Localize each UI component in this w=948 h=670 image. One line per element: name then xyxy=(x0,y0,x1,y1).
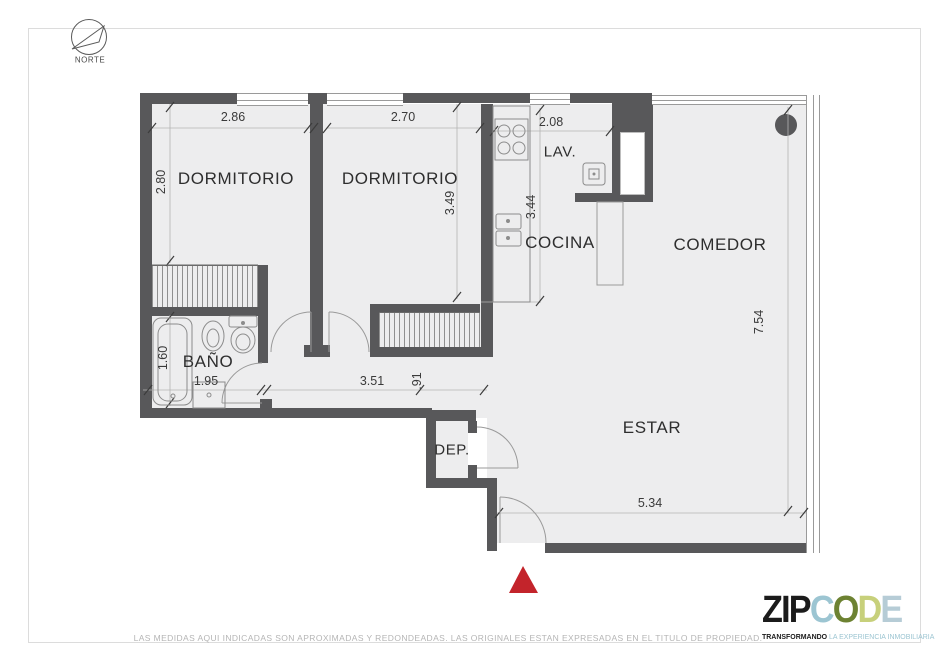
room-label-comedor: COMEDOR xyxy=(674,235,767,255)
floorplan-linework xyxy=(0,0,948,670)
entrance-arrow-icon xyxy=(509,566,538,593)
dim-cocina-alto: 3.44 xyxy=(524,195,538,219)
logo-letter-o: O xyxy=(833,589,858,631)
room-label-lavadero: LAV. xyxy=(544,144,576,161)
door-entrance xyxy=(500,497,546,543)
room-label-deposito: DEP. xyxy=(434,442,469,459)
door-deposito xyxy=(477,427,518,468)
zipcode-logo: ZIPCODE TRANSFORMANDO LA EXPERIENCIA INM… xyxy=(762,591,927,641)
floorplan-page: { "compass": { "label": "NORTE" }, "floo… xyxy=(0,0,948,670)
kitchen-island-counter xyxy=(597,202,623,285)
room-label-dormitorio-1: DORMITORIO xyxy=(178,169,294,189)
north-compass-icon xyxy=(72,20,107,55)
tagline-rest: LA EXPERIENCIA INMOBILIARIA xyxy=(827,632,934,641)
stove-icon xyxy=(495,119,528,160)
logo-letter-d: D xyxy=(858,589,881,631)
bidet-icon xyxy=(202,321,224,351)
room-label-cocina: COCINA xyxy=(525,233,595,253)
dim-comedor-alto: 7.54 xyxy=(752,310,766,334)
logo-letter-c: C xyxy=(810,589,833,631)
door-dormitorio-1 xyxy=(271,312,311,352)
dim-pasillo-resto: .91 xyxy=(410,372,424,389)
tagline-bold: TRANSFORMANDO xyxy=(762,632,827,641)
room-label-dormitorio-2: DORMITORIO xyxy=(342,169,458,189)
door-arcs xyxy=(222,312,546,543)
room-label-banio: BAÑO xyxy=(183,352,234,372)
dim-dormitorio-1-alto: 2.80 xyxy=(154,170,168,194)
dim-banio-alto: 1.60 xyxy=(156,346,170,370)
washing-machine-icon xyxy=(583,163,605,185)
dim-dormitorio-2-alto: 3.49 xyxy=(443,191,457,215)
zipcode-logo-tagline: TRANSFORMANDO LA EXPERIENCIA INMOBILIARI… xyxy=(762,632,922,641)
toilet-icon xyxy=(229,316,257,353)
dimension-ticks xyxy=(144,102,808,518)
compass-label: NORTE xyxy=(75,56,105,65)
logo-letter-e: E xyxy=(880,589,901,631)
room-label-estar: ESTAR xyxy=(623,418,681,438)
zipcode-logo-wordmark: ZIPCODE xyxy=(762,591,911,629)
dim-lavadero-ancho: 2.08 xyxy=(539,115,563,129)
dimension-lines xyxy=(143,104,806,513)
disclaimer-text: LAS MEDIDAS AQUI INDICADAS SON APROXIMAD… xyxy=(118,633,778,643)
logo-zip: ZIP xyxy=(762,589,810,631)
dim-pasillo-ancho: 3.51 xyxy=(360,374,384,388)
kitchen-sink-icon xyxy=(496,214,521,246)
dim-dormitorio-1-ancho: 2.86 xyxy=(221,110,245,124)
door-dormitorio-2 xyxy=(329,312,369,352)
dim-estar-ancho: 5.34 xyxy=(638,496,662,510)
dim-dormitorio-2-ancho: 2.70 xyxy=(391,110,415,124)
dim-banio-ancho: 1.95 xyxy=(194,374,218,388)
